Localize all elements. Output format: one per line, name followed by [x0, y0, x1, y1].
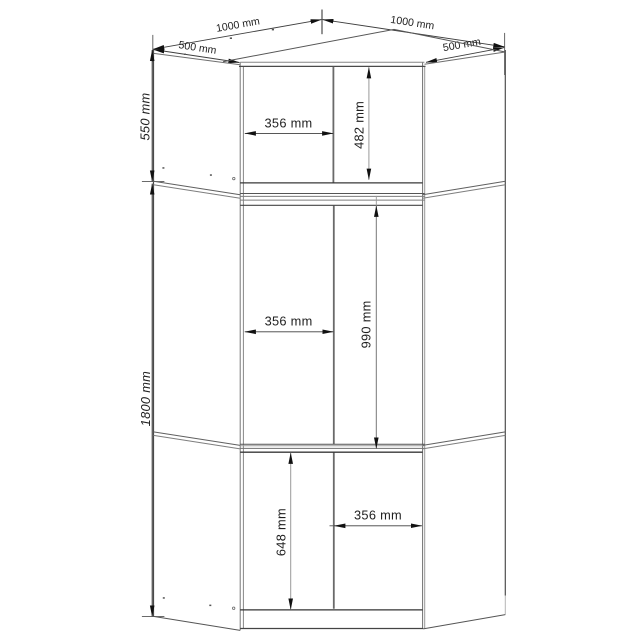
svg-text:356 mm: 356 mm: [264, 115, 312, 130]
svg-text:1800 mm: 1800 mm: [138, 371, 153, 426]
svg-text:356 mm: 356 mm: [354, 508, 402, 523]
svg-text:550 mm: 550 mm: [138, 92, 153, 140]
svg-text:482 mm: 482 mm: [351, 101, 366, 149]
svg-text:990 mm: 990 mm: [358, 300, 373, 348]
svg-text:356 mm: 356 mm: [265, 314, 313, 329]
svg-text:648 mm: 648 mm: [274, 508, 289, 556]
